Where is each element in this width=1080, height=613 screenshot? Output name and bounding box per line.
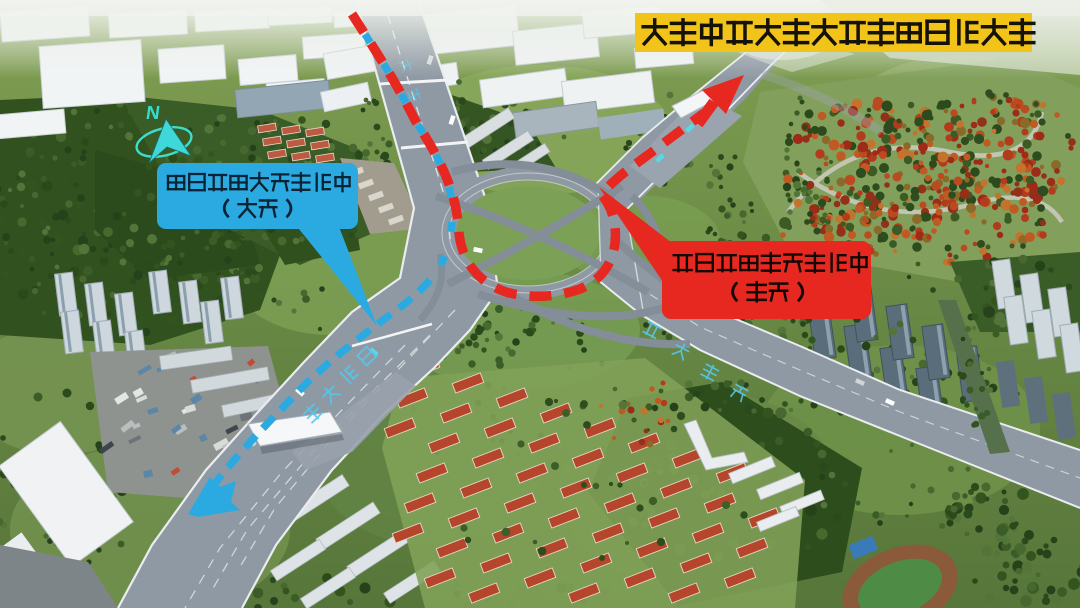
svg-text:N: N — [145, 103, 162, 124]
